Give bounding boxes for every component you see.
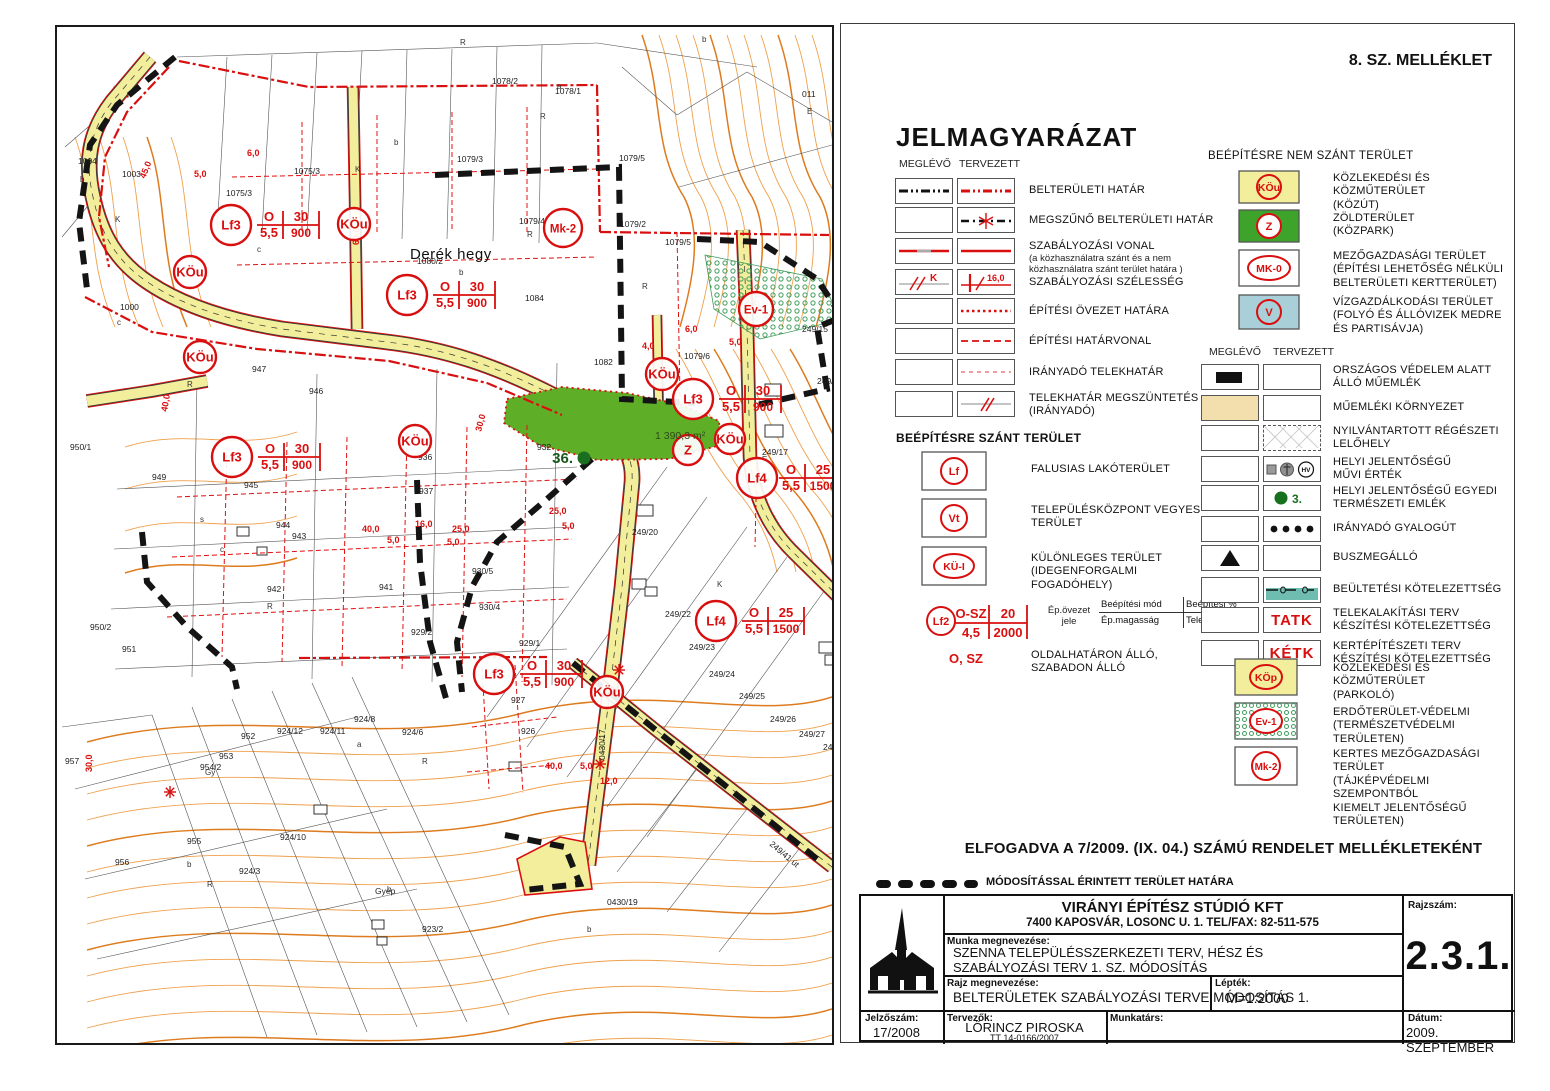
gyalogut-planned-sample: [1263, 516, 1321, 542]
scale-value: M=1:2000: [1226, 990, 1289, 1006]
drawing-title-label: Rajz megnevezése:: [947, 978, 1039, 989]
mk2-symbol-box: Mk-2: [1234, 746, 1298, 791]
caption-cell: Beépítési mód: [1099, 597, 1184, 612]
zone-symbol-mk-2: Mk-2: [550, 224, 576, 236]
telekhatar-megszuntetes-existing-sample: [895, 391, 953, 417]
zoning-map: 6,05,060,045,040,016,040,025,05,05,04,06…: [55, 25, 834, 1045]
parcel-number: 946: [309, 386, 323, 396]
legend-label: IRÁNYADÓ TELEKHATÁR: [1029, 366, 1164, 379]
parcel-number: 1079/6: [684, 351, 710, 361]
zone-table-value: 900: [554, 675, 574, 689]
parcel-number: 932: [537, 442, 551, 452]
svg-text:KÜ-I: KÜ-I: [943, 560, 965, 573]
belteruleti-hatar-planned-sample: [957, 178, 1015, 204]
parcel-number: 1000: [120, 302, 139, 312]
parcel-number: Gyep: [375, 886, 396, 896]
parcel-number: 249/23: [689, 642, 715, 652]
svg-text:Vt: Vt: [949, 513, 960, 525]
dimension-label: 5,0: [447, 537, 460, 547]
svg-text:K: K: [930, 273, 938, 284]
firm-address: 7400 KAPOSVÁR, LOSONC U. 1. TEL/FAX: 82-…: [943, 917, 1402, 929]
zone-table-value: 5,5: [722, 399, 740, 414]
svg-text:4,5: 4,5: [962, 625, 980, 640]
lf-symbol-box: Lf: [921, 451, 987, 496]
land-use-letter: R: [642, 282, 648, 291]
parcel-number: 943: [292, 531, 306, 541]
svg-text:KÖp: KÖp: [1255, 671, 1277, 684]
zone-symbol-köu: KÖu: [401, 434, 429, 449]
legend-label: FALUSIAS LAKÓTERÜLET: [1031, 463, 1170, 476]
svg-text:3.: 3.: [1292, 492, 1302, 506]
land-use-letter: b: [394, 138, 399, 147]
dimension-label: 5,0: [580, 761, 593, 771]
epitesi-hatarvonal-planned-sample: [957, 328, 1015, 354]
megszuno-hatar-existing-sample: [895, 207, 953, 233]
roads: [87, 57, 832, 895]
zone-table-value: O: [726, 383, 736, 398]
land-use-letter: a: [557, 82, 562, 91]
legend-label: BEÜLTETÉSI KÖTELEZETTSÉG: [1333, 583, 1501, 596]
land-use-letter: R: [540, 112, 546, 121]
parcel-number: 942: [267, 584, 281, 594]
land-use-letter: K: [355, 165, 361, 174]
modification-note: MÓDOSÍTÁSSAL ÉRINTETT TERÜLET HATÁRA: [986, 876, 1234, 888]
studio-logo: [868, 906, 938, 1006]
land-use-letter: R: [187, 380, 193, 389]
kop-symbol-box: KÖp: [1234, 658, 1298, 701]
svg-text:Lf: Lf: [949, 466, 960, 478]
column-planned: TERVEZETT: [1273, 346, 1334, 358]
parcel-number: 0430/17: [597, 729, 607, 760]
zone-table-value: O: [440, 279, 450, 294]
parcel-number: 249/27: [799, 729, 825, 739]
legend-label: BUSZMEGÁLLÓ: [1333, 551, 1418, 564]
parcel-number: 950/1: [70, 442, 92, 452]
column-planned: TERVEZETT: [959, 158, 1020, 170]
zone-symbol-lf3: Lf3: [221, 218, 241, 233]
parcel-number: 249/20: [632, 527, 658, 537]
parcel-number: 957: [65, 756, 79, 766]
legend-label: MŰEMLÉKI KÖRNYEZET: [1333, 401, 1464, 414]
legend-label: ORSZÁGOS VÉDELEM ALATT ÁLLÓ MŰEMLÉK: [1333, 364, 1491, 391]
land-use-letter: R: [527, 230, 533, 239]
date-value: 2009. SZEPTEMBER: [1406, 1025, 1511, 1055]
land-use-letter: c: [257, 245, 261, 254]
nem-szant-header: BEÉPÍTÉSRE NEM SZÁNT TERÜLET: [1208, 150, 1413, 162]
column-existing: MEGLÉVŐ: [899, 158, 951, 170]
parcel-number: 949: [152, 472, 166, 482]
place-name: Derék hegy: [410, 246, 492, 263]
parcel-number: 937: [419, 486, 433, 496]
svg-text:Lf2: Lf2: [933, 616, 950, 628]
parcel-number: 1004: [78, 156, 97, 166]
land-use-letter: R: [207, 880, 213, 889]
legend-label: TELEKALAKÍTÁSI TERV KÉSZÍTÉSI KÖTELEZETT…: [1333, 607, 1491, 634]
ev1-symbol-box: Ev-1: [1234, 702, 1298, 745]
zone-symbol-köu: KÖu: [648, 367, 676, 382]
dimension-label: 5,0: [194, 169, 207, 179]
dimension-label: 16,0: [415, 519, 433, 529]
title-block: VIRÁNYI ÉPÍTÉSZ STÚDIÓ KFT 7400 KAPOSVÁR…: [859, 894, 1513, 1042]
parcel-number: 1075/3: [294, 166, 320, 176]
szabalyozasi-vonal-planned-sample: [957, 238, 1015, 264]
z-symbol-box: Z: [1238, 209, 1300, 248]
legend-label: HELYI JELENTŐSÉGŰ MŰVI ÉRTÉK: [1333, 456, 1451, 483]
svg-text:Z: Z: [1266, 221, 1273, 233]
legend-label: MEZŐGAZDASÁGI TERÜLET (ÉPÍTÉSI LEHETŐSÉG…: [1333, 250, 1503, 290]
szab-szelesseg-existing-sample: K: [895, 269, 953, 295]
svg-text:16,0: 16,0: [987, 273, 1005, 283]
parcel-number: 1079/3: [457, 154, 483, 164]
dimension-label: 12,0: [600, 776, 618, 786]
legend-label: KERTES MEZŐGAZDASÁGI TERÜLET (TÁJKÉPVÉDE…: [1333, 748, 1514, 828]
parcel-number: 1084: [525, 293, 544, 303]
zone-table-value: 5,5: [260, 225, 278, 240]
zone-symbol-köu: KÖu: [593, 685, 621, 700]
iranyado-telekhatar-existing-sample: [895, 359, 953, 385]
parcel-number: 944: [276, 520, 290, 530]
zone-table-value: 30: [557, 658, 571, 673]
land-use-letter: s: [200, 515, 204, 524]
zone-table-value: 30: [756, 383, 770, 398]
legend-label: ÉPÍTÉSI ÖVEZET HATÁRA: [1029, 305, 1169, 318]
legend-panel: 8. SZ. MELLÉKLET JELMAGYARÁZAT MEGLÉVŐ T…: [840, 23, 1515, 1043]
legend-title: JELMAGYARÁZAT: [896, 122, 1137, 153]
legend-label: KÜLÖNLEGES TERÜLET (IDEGENFORGALMI FOGAD…: [1031, 552, 1221, 592]
epitesi-hatarvonal-existing-sample: [895, 328, 953, 354]
modification-dash-icon: [876, 878, 978, 890]
legend-label: BELTERÜLETI HATÁR: [1029, 184, 1145, 197]
parcel-number: 249/15: [802, 324, 828, 334]
muemlek-planned-sample: [1263, 364, 1321, 390]
parcel-number: 249/25: [739, 691, 765, 701]
green-area-label: 1 390,3 m²: [655, 430, 706, 442]
legend-label: IRÁNYADÓ GYALOGÚT: [1333, 522, 1456, 535]
zone-table-value: 5,5: [782, 478, 800, 493]
zone-symbol-lf3: Lf3: [484, 667, 504, 682]
parcel-number: 947: [252, 364, 266, 374]
zone-symbol-z: Z: [684, 443, 692, 458]
legend-label: SZABÁLYOZÁSI SZÉLESSÉG: [1029, 276, 1184, 289]
land-use-letter: Gy: [205, 768, 215, 777]
work-name: SZENNA TELEPÜLÉSSZERKEZETI TERV, HÉSZ ÉS…: [953, 946, 1263, 975]
parcel-number: 929/2: [411, 627, 433, 637]
land-use-letter: R: [422, 757, 428, 766]
legend-line-items: BELTERÜLETI HATÁR MEGSZŰNŐ BELTERÜLETI H…: [895, 178, 1215, 448]
parcel-number: 924/12: [277, 726, 303, 736]
dimension-label: 40,0: [545, 761, 563, 771]
v-symbol-box: V: [1238, 294, 1300, 335]
collaborator-label: Munkatárs:: [1110, 1013, 1163, 1024]
zone-symbol-köu: KÖu: [340, 217, 368, 232]
land-use-letter: E: [807, 107, 812, 116]
land-use-letter: b: [80, 175, 85, 184]
parcel-number: 249/26: [770, 714, 796, 724]
designer-reg: TT 14-0166/2007: [943, 1033, 1106, 1043]
parcel-number: 927: [511, 695, 525, 705]
svg-text:MK-0: MK-0: [1256, 263, 1282, 275]
parcel-number: 249/24: [709, 669, 735, 679]
szabalyozasi-vonal-existing-sample: [895, 238, 953, 264]
buszmegallo-existing-sample: [1201, 545, 1259, 571]
parcel-number: 924/6: [402, 727, 424, 737]
epitesi-ovezet-existing-sample: [895, 298, 953, 324]
parcel-number: 929/1: [519, 638, 541, 648]
dimension-label: 6,0: [247, 148, 260, 158]
zone-symbol-köu: KÖu: [716, 432, 744, 447]
zone-table-value: O: [749, 605, 759, 620]
svg-text:20: 20: [1001, 606, 1015, 621]
zone-table-value: 30: [294, 209, 308, 224]
zone-table-value: 1500: [773, 622, 800, 636]
drawing-number: 2.3.1.: [1402, 934, 1515, 979]
scale-label: Lépték:: [1215, 978, 1251, 989]
zone-symbol-lf3: Lf3: [683, 392, 703, 407]
adoption-note: ELFOGADVA A 7/2009. (IX. 04.) SZÁMÚ REND…: [951, 840, 1496, 857]
svg-text:O-SZ: O-SZ: [955, 606, 986, 621]
parcel-number: 955: [187, 836, 201, 846]
code-value: 17/2008: [873, 1025, 920, 1040]
regeszeti-existing-sample: [1201, 425, 1259, 451]
legend-label: TELEKHATÁR MEGSZÜNTETÉS (IRÁNYADÓ): [1029, 392, 1198, 419]
zone-table-value: 5,5: [745, 621, 763, 636]
parcel-number: 924/3: [239, 866, 261, 876]
monument-dot: [578, 452, 591, 465]
svg-text:KÖu: KÖu: [1258, 181, 1280, 194]
zone-table-value: 5,5: [523, 674, 541, 689]
parcel-number: 950/2: [90, 622, 112, 632]
regeszeti-planned-sample: [1263, 425, 1321, 451]
zone-table-value: 25: [779, 605, 793, 620]
plan-sheet: 6,05,060,045,040,016,040,025,05,05,04,06…: [0, 0, 1550, 1091]
parcel-number: 1079/5: [665, 237, 691, 247]
dimension-label: 25,0: [549, 506, 567, 516]
land-use-letter: c: [220, 545, 224, 554]
parcel-number: 1079/5: [619, 153, 645, 163]
legend-label: KÖZLEKEDÉSI ÉS KÖZMŰTERÜLET (PARKOLÓ): [1333, 662, 1514, 702]
parcel-number: 924/8: [354, 714, 376, 724]
svg-text:Mk-2: Mk-2: [1255, 762, 1278, 773]
zone-table-value: O: [265, 441, 275, 456]
zone-symbol-ev-1: Ev-1: [744, 305, 769, 317]
parcel-number: 956: [115, 857, 129, 867]
legend-label: VÍZGAZDÁLKODÁSI TERÜLET (FOLYÓ ÉS ÁLLÓVI…: [1333, 296, 1502, 336]
attachment-label: 8. SZ. MELLÉKLET: [1349, 52, 1492, 70]
legend-label: KÖZLEKEDÉSI ÉS KÖZMŰTERÜLET (KÖZÚT): [1333, 172, 1514, 212]
zone-symbol-köu: KÖu: [176, 265, 204, 280]
svg-text:HV: HV: [1301, 467, 1311, 474]
parcel-number: 249/28: [823, 742, 832, 752]
land-use-letter: K: [717, 580, 723, 589]
tatk-existing-sample: [1201, 607, 1259, 633]
szant-header: BEÉPÍTÉSRE SZÁNT TERÜLET: [896, 431, 1081, 445]
code-label: Jelzőszám:: [865, 1013, 918, 1024]
zoning-map-drawing: 6,05,060,045,040,016,040,025,05,05,04,06…: [57, 27, 832, 1043]
parcel-number: 249/16: [817, 376, 832, 386]
osz-symbol: O, SZ: [949, 651, 983, 666]
parcel-number: 1003: [122, 169, 141, 179]
dimension-label: 5,0: [729, 337, 742, 347]
parcel-number: 0430/19: [607, 897, 638, 907]
legend-label: MEGSZŰNŐ BELTERÜLETI HATÁR: [1029, 214, 1213, 227]
column-existing: MEGLÉVŐ: [1209, 346, 1261, 358]
land-use-letter: b: [387, 885, 392, 894]
parcel-number: 1075/3: [226, 188, 252, 198]
zone-code-formula: Lf2O-SZ204,52000: [923, 597, 1033, 648]
zone-table-value: 30: [295, 441, 309, 456]
dimension-labels: 6,05,060,045,040,016,040,025,05,05,04,06…: [84, 148, 742, 786]
zone-symbol-lf4: Lf4: [706, 614, 726, 629]
buszmegallo-planned-sample: [1263, 545, 1321, 571]
zone-table-value: 5,5: [436, 295, 454, 310]
osz-label: OLDALHATÁRON ÁLLÓ, SZABADON ÁLLÓ: [1031, 649, 1158, 676]
parcel-number: 941: [379, 582, 393, 592]
dimension-label: 25,0: [452, 524, 470, 534]
belteruleti-hatar-existing-sample: [895, 178, 953, 204]
beultetesi-planned-sample: [1263, 577, 1321, 603]
zone-table-value: 900: [467, 296, 487, 310]
dimension-label: 5,0: [562, 521, 575, 531]
termeszeti-emlek-existing-sample: [1201, 485, 1259, 511]
parcel-number: 953: [219, 751, 233, 761]
megszuno-hatar-planned-sample: [957, 207, 1015, 233]
gyalogut-existing-sample: [1201, 516, 1259, 542]
land-use-letter: b: [459, 268, 464, 277]
parcel-number: 952: [241, 731, 255, 741]
zone-table-value: 25: [816, 462, 830, 477]
zone-symbol-lf4: Lf4: [747, 471, 767, 486]
termeszeti-emlek-planned-sample: 3.: [1263, 485, 1321, 511]
parcel-number: 1082: [594, 357, 613, 367]
zone-symbol-lf3: Lf3: [222, 450, 242, 465]
muemleki-kornyezet-planned-sample: [1263, 395, 1321, 421]
firm-name: VIRÁNYI ÉPÍTÉSZ STÚDIÓ KFT: [943, 899, 1402, 916]
legend-label: HELYI JELENTŐSÉGŰ EGYEDI TERMÉSZETI EMLÉ…: [1333, 485, 1497, 512]
land-use-letter: K: [115, 215, 121, 224]
legend-label: ÉPÍTÉSI HATÁRVONAL: [1029, 335, 1151, 348]
muemlek-existing-sample: [1201, 364, 1259, 390]
mk0-symbol-box: MK-0: [1238, 249, 1300, 292]
parcel-number: 1078/2: [492, 76, 518, 86]
zone-table-value: O: [786, 462, 796, 477]
svg-text:2000: 2000: [994, 625, 1023, 640]
legend-label: TELEPÜLÉSKÖZPONT VEGYES TERÜLET: [1031, 504, 1200, 531]
parcel-number: 945: [244, 480, 258, 490]
beultetesi-existing-sample: [1201, 577, 1259, 603]
date-label: Dátum:: [1408, 1013, 1442, 1024]
tatk-planned-sample: TATK: [1263, 607, 1321, 633]
vt-symbol-box: Vt: [921, 498, 987, 543]
land-use-letter: b: [187, 860, 192, 869]
zone-symbol-lf3: Lf3: [397, 288, 417, 303]
land-use-letter: b: [587, 925, 592, 934]
dimension-label: 30,0: [473, 413, 487, 433]
parcel-number: 011: [802, 89, 816, 99]
dimension-label: 30,0: [84, 754, 94, 772]
legend-label: SZABÁLYOZÁSI VONAL: [1029, 240, 1155, 253]
zone-symbol-köu: KÖu: [186, 350, 214, 365]
caption-cell: Ép.magasság: [1099, 613, 1184, 628]
muemleki-kornyezet-existing-sample: [1201, 395, 1259, 421]
legend-note: (a közhasználatra szánt és a nem közhasz…: [1029, 254, 1183, 276]
zone-table-value: 900: [291, 226, 311, 240]
land-use-letter: R: [267, 602, 273, 611]
zone-table-value: 900: [292, 458, 312, 472]
szab-szelesseg-planned-sample: 16,0: [957, 269, 1015, 295]
land-use-letter: R: [460, 38, 466, 47]
parcel-number: 1079/4: [519, 216, 545, 226]
legend-label: NYILVÁNTARTOTT RÉGÉSZETI LELŐHELY: [1333, 425, 1499, 452]
muvi-ertek-existing-sample: [1201, 456, 1259, 482]
dimension-label: 40,0: [159, 393, 172, 412]
zone-table-value: O: [264, 209, 274, 224]
modification-boundary: [79, 57, 832, 890]
zone-table-value: O: [527, 658, 537, 673]
parcel-number: 1079/2: [620, 219, 646, 229]
zone-table-value: 900: [753, 400, 773, 414]
dimension-label: 4,0: [642, 341, 655, 351]
dimension-label: 40,0: [362, 524, 380, 534]
telekhatar-megszuntetes-planned-sample: [957, 391, 1015, 417]
iranyado-telekhatar-planned-sample: [957, 359, 1015, 385]
svg-text:V: V: [1265, 307, 1273, 319]
svg-text:Ev-1: Ev-1: [1255, 717, 1277, 728]
drawing-number-label: Rajzszám:: [1408, 900, 1457, 911]
kui-symbol-box: KÜ-I: [921, 546, 987, 591]
legend-label: ERDŐTERÜLET-VÉDELMI (TERMÉSZETVÉDELMI TE…: [1333, 706, 1514, 746]
parcel-number: 930/5: [472, 566, 494, 576]
monument-number: 36.: [552, 450, 573, 467]
parcel-number: 924/10: [280, 832, 306, 842]
land-use-letter: b: [702, 35, 707, 44]
parcel-number: 249/22: [665, 609, 691, 619]
land-use-letter: c: [117, 318, 121, 327]
parcel-number: 926: [521, 726, 535, 736]
legend-label: ZÖLDTERÜLET (KÖZPARK): [1333, 212, 1415, 239]
epitesi-ovezet-planned-sample: [957, 298, 1015, 324]
parcel-number: 951: [122, 644, 136, 654]
kou-symbol-box: KÖu: [1238, 170, 1300, 209]
parcel-number: 923/2: [422, 924, 444, 934]
land-use-letter: a: [357, 740, 362, 749]
parcel-number: 924/11: [320, 726, 346, 736]
dimension-label: 5,0: [387, 535, 400, 545]
parcel-number: 930/4: [479, 602, 501, 612]
dimension-label: 6,0: [685, 324, 698, 334]
muvi-ertek-planned-sample: HV: [1263, 456, 1321, 482]
zone-table-value: 30: [470, 279, 484, 294]
formula-caption-left: Ép.övezet jele: [1046, 606, 1092, 628]
zone-table-value: 1500: [810, 479, 832, 493]
zone-table-value: 5,5: [261, 457, 279, 472]
